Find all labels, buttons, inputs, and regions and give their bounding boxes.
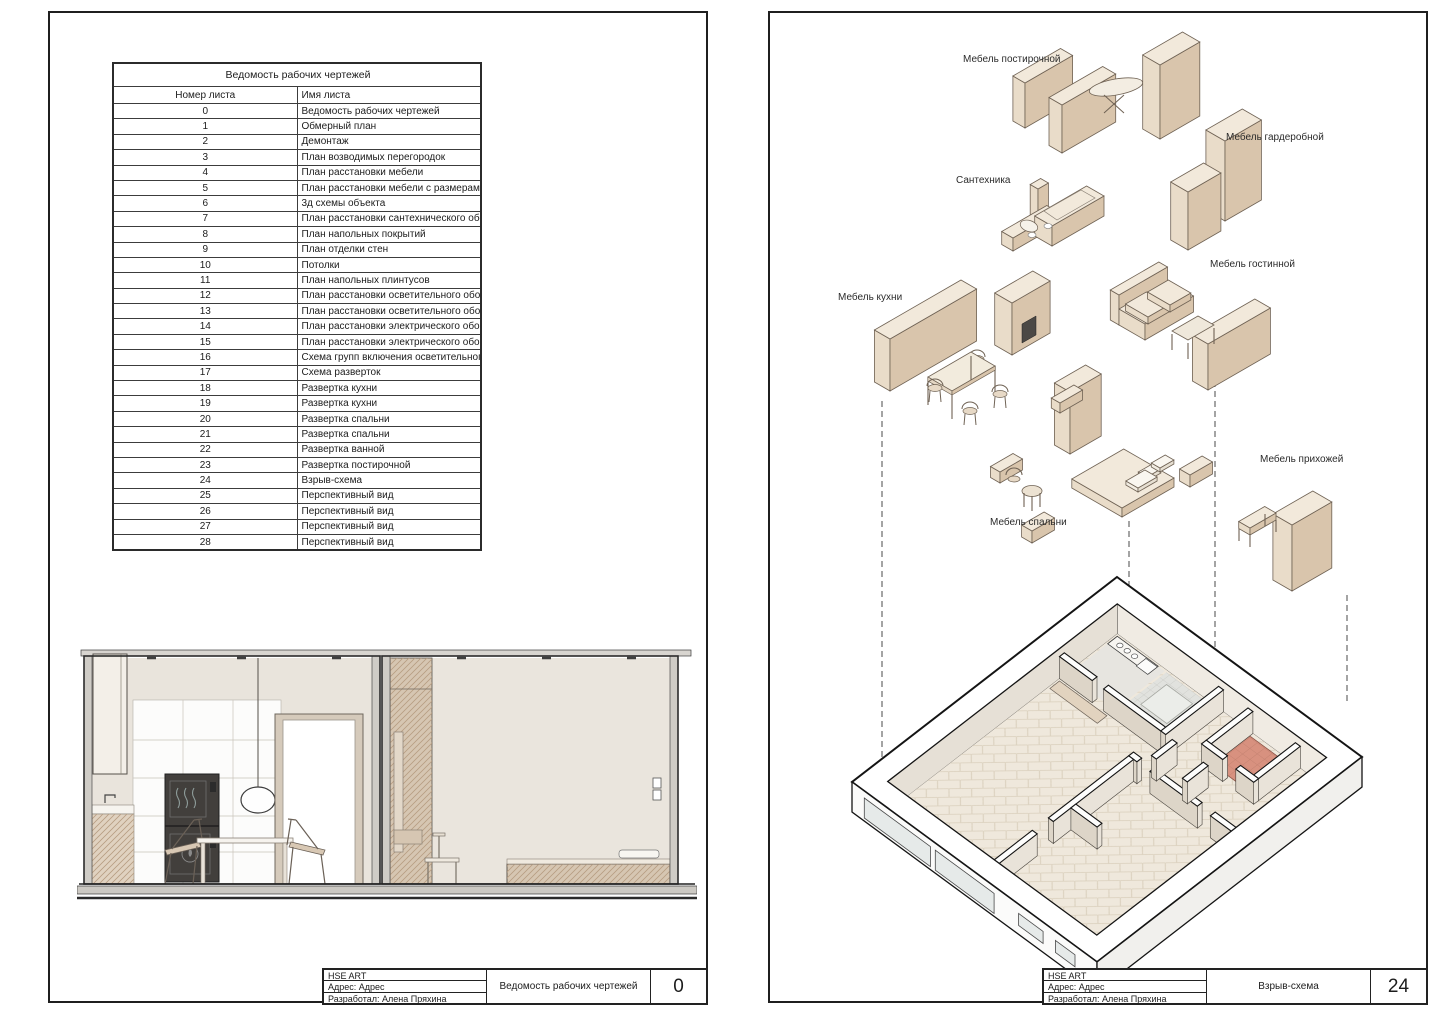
sheet-name-cell: Перспективный вид: [297, 504, 481, 519]
title-block: HSE ART Адрес: Адрес Разработал: Алена П…: [1042, 968, 1428, 1005]
sheet-name-cell: Потолки: [297, 257, 481, 272]
table-row: 0 Ведомость рабочих чертежей: [113, 104, 481, 119]
table-row: 22 Развертка ванной: [113, 442, 481, 457]
sheet-title: Ведомость рабочих чертежей: [487, 970, 651, 1003]
sheet-name-cell: Демонтаж: [297, 134, 481, 149]
sheet-number-cell: 12: [113, 288, 297, 303]
exploded-axonometric-drawing: [770, 13, 1426, 1001]
door-handle: [653, 778, 661, 788]
table-row: 15 План расстановки электрического обору…: [113, 334, 481, 349]
table-row: 7 План расстановки сантехнического обору…: [113, 211, 481, 226]
sheet-name-cell: План расстановки сантехнического оборудо…: [297, 211, 481, 226]
sheet-name-cell: План расстановки электрического оборудов…: [297, 334, 481, 349]
sheet-name-cell: Схема групп включения осветительного обо…: [297, 350, 481, 365]
sheet-name-cell: Развертка спальни: [297, 427, 481, 442]
author: Разработал: Алена Пряхина: [324, 993, 486, 1003]
table-row: 8 План напольных покрытий: [113, 227, 481, 242]
sheet-number-cell: 9: [113, 242, 297, 257]
table-row: 1 Обмерный план: [113, 119, 481, 134]
sheet-number-cell: 28: [113, 534, 297, 550]
author: Разработал: Алена Пряхина: [1044, 993, 1206, 1003]
drawing-list-table: Ведомость рабочих чертежей Номер листа И…: [112, 62, 482, 551]
table-row: 13 План расстановки осветительного обору…: [113, 304, 481, 319]
sheet-number: 0: [651, 970, 706, 1003]
table-row: 9 План отделки стен: [113, 242, 481, 257]
sheet-name-cell: Развертка кухни: [297, 381, 481, 396]
table-row: 20 Развертка спальни: [113, 411, 481, 426]
label-living-furniture: Мебель гостинной: [1210, 259, 1295, 270]
table-row: 5 План расстановки мебели с размерами: [113, 180, 481, 195]
sheet-number-cell: 5: [113, 180, 297, 195]
sheet-number-cell: 24: [113, 473, 297, 488]
bedroom-elevation: [382, 656, 678, 884]
sheet-name-cell: План расстановки осветительного оборудов…: [297, 304, 481, 319]
sheet-number-cell: 19: [113, 396, 297, 411]
sheet-name-cell: Ведомость рабочих чертежей: [297, 104, 481, 119]
sheet-number-cell: 3: [113, 150, 297, 165]
sheet-name-cell: План расстановки мебели с размерами: [297, 180, 481, 195]
sheet-name-cell: 3д схемы объекта: [297, 196, 481, 211]
sheet-number-cell: 7: [113, 211, 297, 226]
label-kitchen-furniture: Мебель кухни: [838, 292, 902, 303]
table-row: 26 Перспективный вид: [113, 504, 481, 519]
title-block-info: HSE ART Адрес: Адрес Разработал: Алена П…: [1044, 970, 1207, 1003]
label-plumbing: Сантехника: [956, 175, 1011, 186]
sheet-name-cell: Обмерный план: [297, 119, 481, 134]
sheet-name-cell: Перспективный вид: [297, 488, 481, 503]
organization: HSE ART: [324, 970, 486, 981]
sheet-name-cell: Перспективный вид: [297, 519, 481, 534]
sheet-number-cell: 6: [113, 196, 297, 211]
sheet-number-cell: 17: [113, 365, 297, 380]
table-body: 0 Ведомость рабочих чертежей 1 Обмерный …: [113, 104, 481, 551]
table-row: 17 Схема разверток: [113, 365, 481, 380]
sheet-name-cell: План расстановки мебели: [297, 165, 481, 180]
sheet-name-cell: Развертка кухни: [297, 396, 481, 411]
isometric-floor-plan: [852, 577, 1362, 992]
sheet-name-cell: Развертка спальни: [297, 411, 481, 426]
table-row: 10 Потолки: [113, 257, 481, 272]
sheet-name-cell: Развертка ванной: [297, 442, 481, 457]
label-bedroom-furniture: Мебель спальни: [990, 517, 1067, 528]
sheet-name-cell: План возводимых перегородок: [297, 150, 481, 165]
door-opening: [275, 714, 363, 884]
table-row: 12 План расстановки осветительного обору…: [113, 288, 481, 303]
page: { "sheet_left": { "table": { "title": "В…: [0, 0, 1440, 1018]
sheet-number-cell: 25: [113, 488, 297, 503]
sheet-number-cell: 11: [113, 273, 297, 288]
exploded-furniture: [874, 32, 1331, 591]
title-block-info: HSE ART Адрес: Адрес Разработал: Алена П…: [324, 970, 487, 1003]
sheet-number-cell: 13: [113, 304, 297, 319]
table-row: 23 Развертка постирочной: [113, 457, 481, 472]
pillow: [619, 850, 659, 858]
sheet-number-cell: 0: [113, 104, 297, 119]
sheet-name-cell: Перспективный вид: [297, 534, 481, 550]
table-row: 4 План расстановки мебели: [113, 165, 481, 180]
table-row: 19 Развертка кухни: [113, 396, 481, 411]
table-row: 18 Развертка кухни: [113, 381, 481, 396]
sheet-title: Взрыв-схема: [1207, 970, 1371, 1003]
table-row: 28 Перспективный вид: [113, 534, 481, 550]
label-hallway-furniture: Мебель прихожей: [1260, 454, 1343, 465]
column-header-number: Номер листа: [113, 87, 297, 104]
sheet-name-cell: Развертка постирочной: [297, 457, 481, 472]
sheet-number-cell: 22: [113, 442, 297, 457]
table-row: 14 План расстановки электрического обору…: [113, 319, 481, 334]
sheet-number-cell: 16: [113, 350, 297, 365]
title-block: HSE ART Адрес: Адрес Разработал: Алена П…: [322, 968, 708, 1005]
address: Адрес: Адрес: [324, 981, 486, 992]
organization: HSE ART: [1044, 970, 1206, 981]
sheet-exploded-scheme: Мебель постирочной Мебель гардеробной Са…: [768, 11, 1428, 1003]
sheet-number: 24: [1371, 970, 1426, 1003]
column-header-name: Имя листа: [297, 87, 481, 104]
sheet-number-cell: 18: [113, 381, 297, 396]
kitchen-elevation: [84, 654, 380, 884]
table-row: 11 План напольных плинтусов: [113, 273, 481, 288]
table-row: 6 3д схемы объекта: [113, 196, 481, 211]
table-row: 16 Схема групп включения осветительного …: [113, 350, 481, 365]
sheet-number-cell: 10: [113, 257, 297, 272]
sheet-number-cell: 15: [113, 334, 297, 349]
sheet-name-cell: План расстановки электрического оборудов…: [297, 319, 481, 334]
sheet-number-cell: 21: [113, 427, 297, 442]
sheet-number-cell: 26: [113, 504, 297, 519]
sheet-name-cell: План расстановки осветительного оборудов…: [297, 288, 481, 303]
table-row: 25 Перспективный вид: [113, 488, 481, 503]
sheet-number-cell: 27: [113, 519, 297, 534]
sheet-number-cell: 4: [113, 165, 297, 180]
sheet-name-cell: План напольных плинтусов: [297, 273, 481, 288]
sheet-number-cell: 8: [113, 227, 297, 242]
table-row: 27 Перспективный вид: [113, 519, 481, 534]
table-header-row: Номер листа Имя листа: [113, 87, 481, 104]
oven-stack: [165, 774, 219, 882]
sheet-number-cell: 14: [113, 319, 297, 334]
label-laundry-furniture: Мебель постирочной: [963, 54, 1061, 65]
label-wardrobe-furniture: Мебель гардеробной: [1226, 132, 1324, 143]
table-row: 24 Взрыв-схема: [113, 473, 481, 488]
sheet-name-cell: Схема разверток: [297, 365, 481, 380]
interior-elevation-drawing: [77, 642, 697, 910]
sheet-number-cell: 20: [113, 411, 297, 426]
table-title: Ведомость рабочих чертежей: [113, 63, 481, 87]
table-row: 21 Развертка спальни: [113, 427, 481, 442]
sheet-number-cell: 2: [113, 134, 297, 149]
table-title-row: Ведомость рабочих чертежей: [113, 63, 481, 87]
sheet-number-cell: 23: [113, 457, 297, 472]
sheet-number-cell: 1: [113, 119, 297, 134]
address: Адрес: Адрес: [1044, 981, 1206, 992]
sheet-name-cell: Взрыв-схема: [297, 473, 481, 488]
sheet-name-cell: План отделки стен: [297, 242, 481, 257]
table-row: 2 Демонтаж: [113, 134, 481, 149]
table-row: 3 План возводимых перегородок: [113, 150, 481, 165]
sheet-name-cell: План напольных покрытий: [297, 227, 481, 242]
sheet-drawing-list: Ведомость рабочих чертежей Номер листа И…: [48, 11, 708, 1003]
